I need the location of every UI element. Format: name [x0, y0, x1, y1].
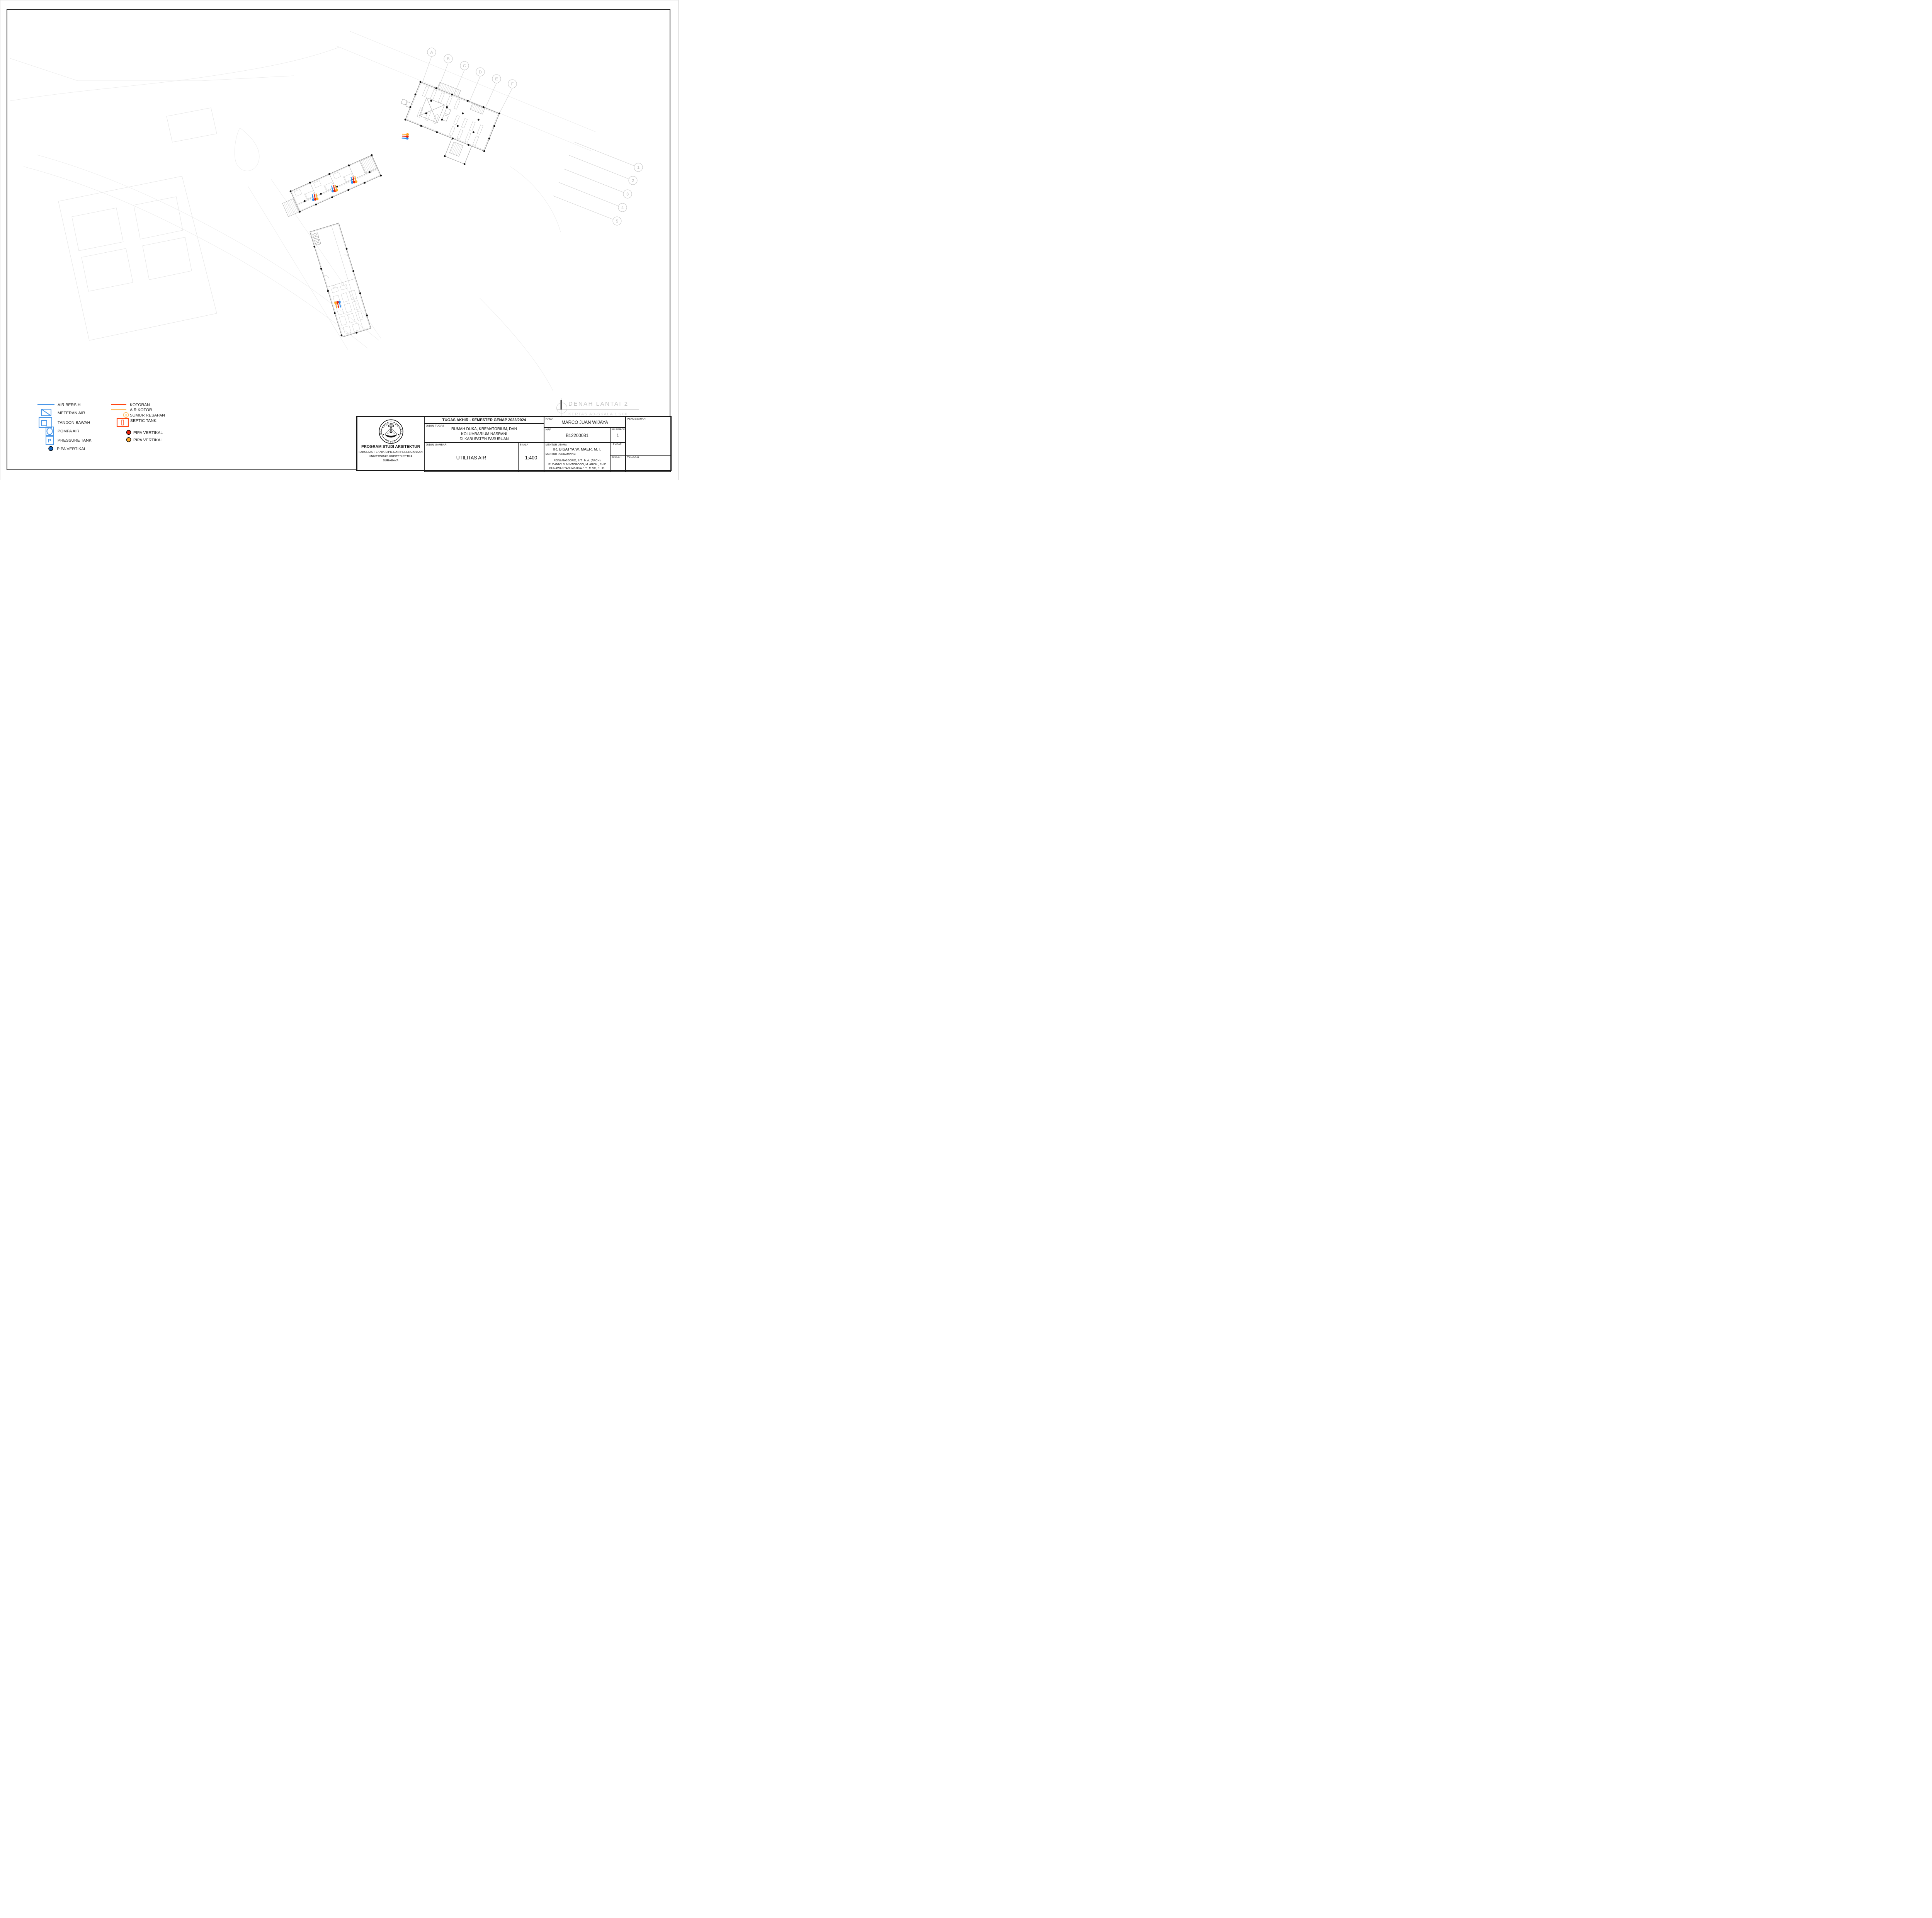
building-l-plan: 1 2 3 4 5: [279, 142, 643, 338]
svg-text:A: A: [430, 50, 433, 55]
svg-text:3: 3: [626, 192, 629, 197]
grid-bubbles-numbers: 1 2 3 4 5: [613, 163, 643, 225]
legend: AIR BERSIH METERAN AIR TANDON BAWAH POMP…: [37, 403, 165, 451]
void-skylight: [419, 98, 444, 123]
grid-bubble-D: D: [476, 68, 485, 76]
header-cell: TUGAS AKHIR - SEMESTER GENAP 2023/2024: [424, 417, 544, 423]
tanggal-label: TANGGAL: [627, 456, 639, 459]
grid-bubble-2: 2: [629, 176, 637, 185]
pipa-vertikal-biru-icon: [49, 447, 53, 451]
pompa-air-icon: [46, 427, 53, 435]
skala-value: 1:400: [519, 455, 544, 461]
legend-label-pipa-vertikal-merah: PIPA VERTIKAL: [133, 430, 163, 435]
skala-cell: SKALA 1:400: [518, 442, 544, 472]
drawing-sheet: A B C D E F: [0, 0, 679, 480]
institution-cell: UNIVERSITAS KRISTEN PETRA PROGRAM STUDI …: [357, 417, 424, 470]
kelompok-cell: KELOMPOK 1: [610, 427, 626, 442]
nrp-label: NRP: [546, 428, 551, 431]
nrp-cell: NRP B12200081: [544, 427, 610, 442]
legend-label-kotoran: KOTORAN: [130, 403, 150, 407]
kelompok-value: 1: [611, 434, 625, 438]
site-drawing: A B C D E F: [0, 0, 678, 480]
pipa-vertikal-kuning-icon: [127, 438, 131, 442]
grid-bubble-E: E: [492, 75, 501, 83]
svg-text:D: D: [479, 70, 482, 75]
grid-bubble-5: 5: [613, 217, 621, 225]
legend-label-air-kotor: AIR KOTOR: [130, 408, 152, 412]
grid-bubble-3: 3: [623, 190, 632, 198]
nrp-value: B12200081: [544, 434, 610, 438]
grid-bubble-A: A: [427, 48, 436, 56]
grid-bubble-C: C: [460, 61, 469, 70]
skala-label: SKALA: [520, 444, 528, 446]
judul-tugas-line3: DI KABUPATEN PASURUAN: [425, 437, 544, 441]
grid-bubble-B: B: [444, 54, 452, 63]
institution-fakultas: FAKULTAS TEKNIK SIPIL DAN PERENCANAAN: [357, 450, 424, 454]
judul-tugas-cell: JUDUL TUGAS RUMAH DUKA, KREMATORIUM, DAN…: [424, 423, 544, 442]
institution-program: PROGRAM STUDI ARSITEKTUR: [357, 445, 424, 450]
sumur-resapan-icon: R: [124, 413, 129, 418]
jumlah-label: JUMLAH: [612, 456, 621, 459]
svg-text:2: 2: [632, 179, 634, 183]
pengesahan-label: PENGESAHAN: [627, 418, 646, 420]
legend-label-pipa-vertikal-kuning: PIPA VERTIKAL: [133, 438, 163, 442]
svg-text:R: R: [125, 413, 128, 417]
building-columbarium-plan: A B C D E F: [388, 48, 517, 170]
sheet-header: TUGAS AKHIR - SEMESTER GENAP 2023/2024: [425, 418, 544, 422]
figure-title: DENAH LANTAI 2: [568, 401, 629, 407]
pressure-tank-icon: P: [46, 436, 53, 445]
svg-text:C: C: [463, 64, 466, 68]
pipe-riser-marker: [401, 132, 410, 140]
svg-text:5: 5: [616, 219, 618, 224]
lembar-cell: LEMBAR: [610, 442, 626, 456]
judul-gambar-value: UTILITAS AIR: [425, 455, 518, 461]
jumlah-cell: JUMLAH: [610, 455, 626, 472]
petra-logo: UNIVERSITAS KRISTEN PETRA: [379, 419, 403, 444]
kelompok-label: KELOMPOK: [612, 428, 625, 431]
svg-text:B: B: [447, 57, 449, 61]
stair-hatch-right: [470, 104, 485, 114]
legend-label-meteran-air: METERAN AIR: [58, 411, 85, 415]
elevators: [442, 108, 451, 121]
nama-label: NAMA: [546, 418, 553, 420]
legend-label-tandon-bawah: TANDON BAWAH: [58, 420, 90, 425]
grid-bubble-1: 1: [634, 163, 643, 172]
nama-value: MARCO JUAN WIJAYA: [544, 420, 625, 425]
mentor-utama-value: IR. BISATYA W. MAER, M.T.: [544, 447, 610, 452]
legend-label-pompa-air: POMPA AIR: [58, 429, 80, 434]
judul-gambar-label: JUDUL GAMBAR: [426, 444, 447, 446]
nama-cell: NAMA MARCO JUAN WIJAYA: [544, 417, 626, 427]
mentor-pendamping-1: RONI ANGGORO, S.T., M.A. (ARCH): [544, 459, 610, 462]
legend-label-pressure-tank: PRESSURE TANK: [58, 438, 92, 443]
columns: [313, 236, 372, 338]
institution-universitas: UNIVERSITAS KRISTEN PETRA: [357, 454, 424, 458]
svg-text:4: 4: [621, 206, 624, 210]
tandon-bawah-icon: [39, 418, 52, 427]
stair-hatch-top: [437, 82, 461, 97]
stair-hatch-east: [361, 156, 377, 173]
septic-tank-icon: [117, 418, 128, 427]
mentor-utama-label: MENTOR UTAMA: [546, 444, 567, 446]
svg-text:F: F: [511, 82, 514, 87]
legend-label-air-bersih: AIR BERSIH: [58, 403, 81, 407]
judul-tugas-line1: RUMAH DUKA, KREMATORIUM, DAN: [425, 427, 544, 431]
legend-label-pipa-vertikal-biru: PIPA VERTIKAL: [57, 447, 86, 451]
grid-leader-lines-letters: [422, 56, 512, 114]
svg-text:E: E: [495, 77, 498, 82]
svg-text:P: P: [48, 438, 51, 444]
legend-label-septic-tank: SEPTIC TANK: [130, 418, 156, 423]
mentor-pendamping-3: GUNAWAN TANUWIJAYA S.T., M.SC, PH.D.: [544, 466, 610, 470]
grid-bubble-4: 4: [618, 203, 627, 212]
judul-gambar-cell: JUDUL GAMBAR UTILITAS AIR: [424, 442, 518, 472]
legend-label-sumur-resapan: SUMUR RESAPAN: [130, 413, 165, 418]
pipa-vertikal-merah-icon: [127, 430, 131, 435]
stair-hatch-west: [282, 199, 299, 217]
site-terrain-lines: [10, 31, 595, 391]
meteran-air-icon: [41, 409, 51, 416]
title-block: UNIVERSITAS KRISTEN PETRA PROGRAM STUDI …: [356, 416, 672, 471]
mentor-cell: MENTOR UTAMA IR. BISATYA W. MAER, M.T. M…: [544, 442, 610, 472]
grid-bubble-F: F: [508, 80, 517, 88]
judul-tugas-line2: KOLUMBARIUM NASRANI: [425, 432, 544, 436]
columbarium-tables: [333, 290, 366, 335]
institution-kota: SURABAYA: [357, 459, 424, 462]
columns: [397, 81, 500, 170]
lifts: [313, 233, 321, 245]
svg-text:1: 1: [637, 165, 639, 170]
pengesahan-cell: PENGESAHAN: [626, 417, 671, 455]
mentor-pendamping-label: MENTOR PENDAMPING: [546, 453, 576, 456]
tanggal-cell: TANGGAL: [626, 455, 671, 472]
site-parking-lines: [58, 108, 217, 340]
lembar-label: LEMBAR: [612, 444, 622, 446]
mentor-pendamping-2: IR. DANNY S. MINTOROGO, M. ARCH., PH.D: [544, 462, 610, 466]
